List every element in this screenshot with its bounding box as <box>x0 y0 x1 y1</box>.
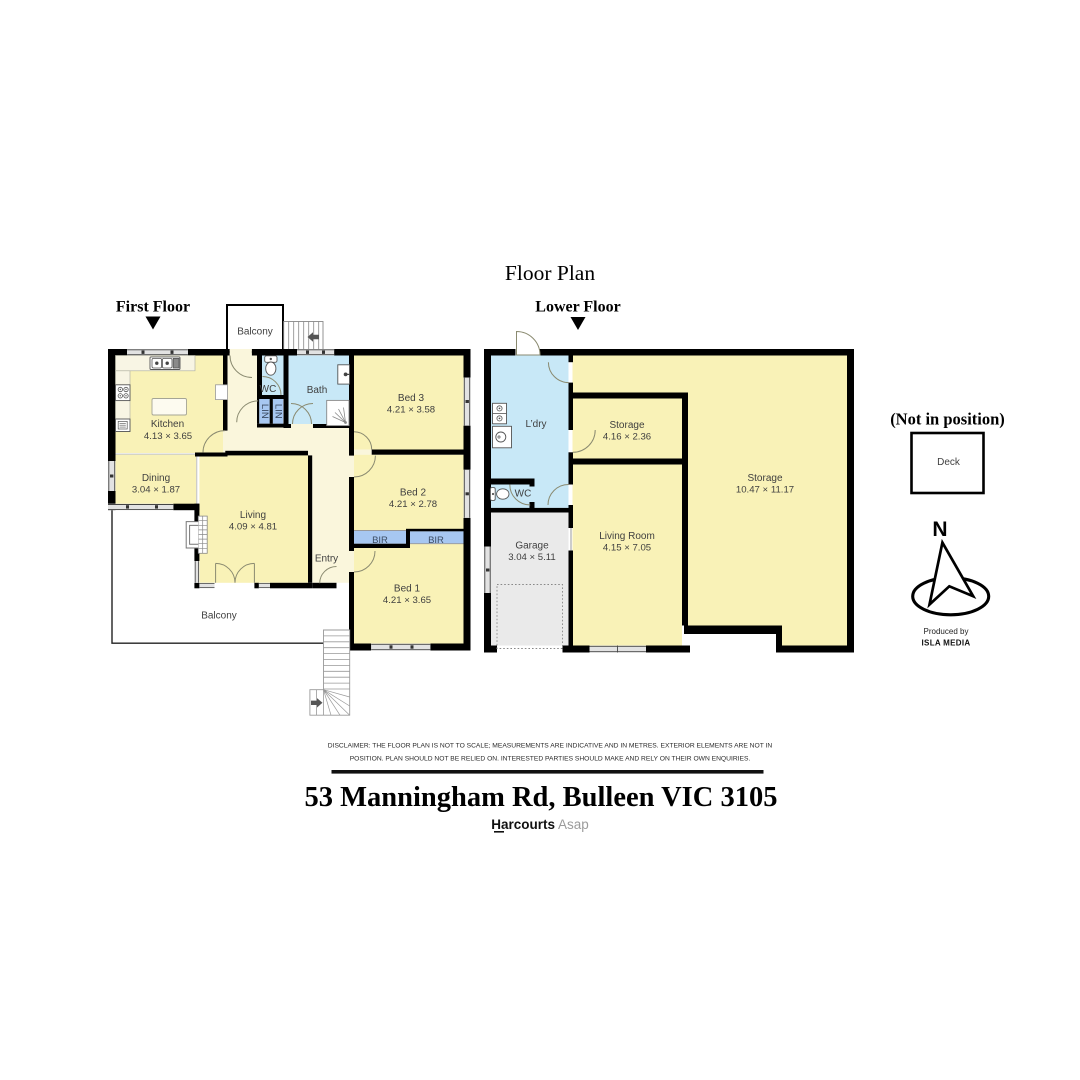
svg-text:Produced by: Produced by <box>924 627 969 636</box>
svg-text:4.15 × 7.05: 4.15 × 7.05 <box>603 542 651 553</box>
svg-text:4.16 × 2.36: 4.16 × 2.36 <box>603 431 651 442</box>
svg-text:4.21 × 3.65: 4.21 × 3.65 <box>383 595 431 606</box>
svg-text:Kitchen: Kitchen <box>151 419 184 430</box>
svg-text:4.21 × 2.78: 4.21 × 2.78 <box>389 499 437 510</box>
svg-text:WC: WC <box>260 384 277 395</box>
svg-text:L’dry: L’dry <box>525 419 546 430</box>
svg-text:(Not in position): (Not in position) <box>890 410 1005 429</box>
svg-text:Harcourts Asap: Harcourts Asap <box>491 817 589 832</box>
svg-text:Bath: Bath <box>307 385 328 396</box>
svg-text:Deck: Deck <box>937 457 961 468</box>
svg-text:BIR: BIR <box>372 535 388 546</box>
svg-text:POSITION. PLAN SHOULD NOT BE R: POSITION. PLAN SHOULD NOT BE RELIED ON. … <box>350 756 751 763</box>
svg-text:First Floor: First Floor <box>116 299 190 316</box>
svg-text:Balcony: Balcony <box>237 327 273 338</box>
svg-text:DISCLAIMER: THE FLOOR PLAN IS: DISCLAIMER: THE FLOOR PLAN IS NOT TO SCA… <box>328 743 773 750</box>
svg-text:4.13 × 3.65: 4.13 × 3.65 <box>144 431 192 442</box>
svg-text:Living Room: Living Room <box>599 531 655 542</box>
svg-text:Lower Floor: Lower Floor <box>535 299 620 316</box>
svg-text:10.47 × 11.17: 10.47 × 11.17 <box>736 484 794 495</box>
svg-text:LIN: LIN <box>272 404 283 419</box>
svg-text:BIR: BIR <box>428 535 444 546</box>
svg-text:4.21 × 3.58: 4.21 × 3.58 <box>387 404 435 415</box>
svg-text:Bed 1: Bed 1 <box>394 584 421 595</box>
svg-text:3.04 × 5.11: 3.04 × 5.11 <box>508 552 556 563</box>
svg-text:ISLA MEDIA: ISLA MEDIA <box>922 639 971 648</box>
svg-text:53 Manningham Rd, Bulleen VIC: 53 Manningham Rd, Bulleen VIC 3105 <box>305 782 778 813</box>
svg-text:Dining: Dining <box>142 473 170 484</box>
svg-text:Storage: Storage <box>609 420 644 431</box>
svg-text:3.04 × 1.87: 3.04 × 1.87 <box>132 485 180 496</box>
svg-text:Entry: Entry <box>315 554 338 565</box>
svg-text:WC: WC <box>515 489 532 500</box>
svg-text:Floor Plan: Floor Plan <box>505 261 595 285</box>
svg-text:Bed 3: Bed 3 <box>398 393 425 404</box>
svg-text:LIN: LIN <box>259 404 270 419</box>
svg-text:Garage: Garage <box>515 540 549 551</box>
svg-text:4.09 × 4.81: 4.09 × 4.81 <box>229 522 277 533</box>
svg-text:Living: Living <box>240 510 266 521</box>
svg-text:N: N <box>932 518 947 541</box>
svg-text:Balcony: Balcony <box>201 611 237 622</box>
svg-text:Storage: Storage <box>747 473 782 484</box>
svg-text:Bed 2: Bed 2 <box>400 488 427 499</box>
